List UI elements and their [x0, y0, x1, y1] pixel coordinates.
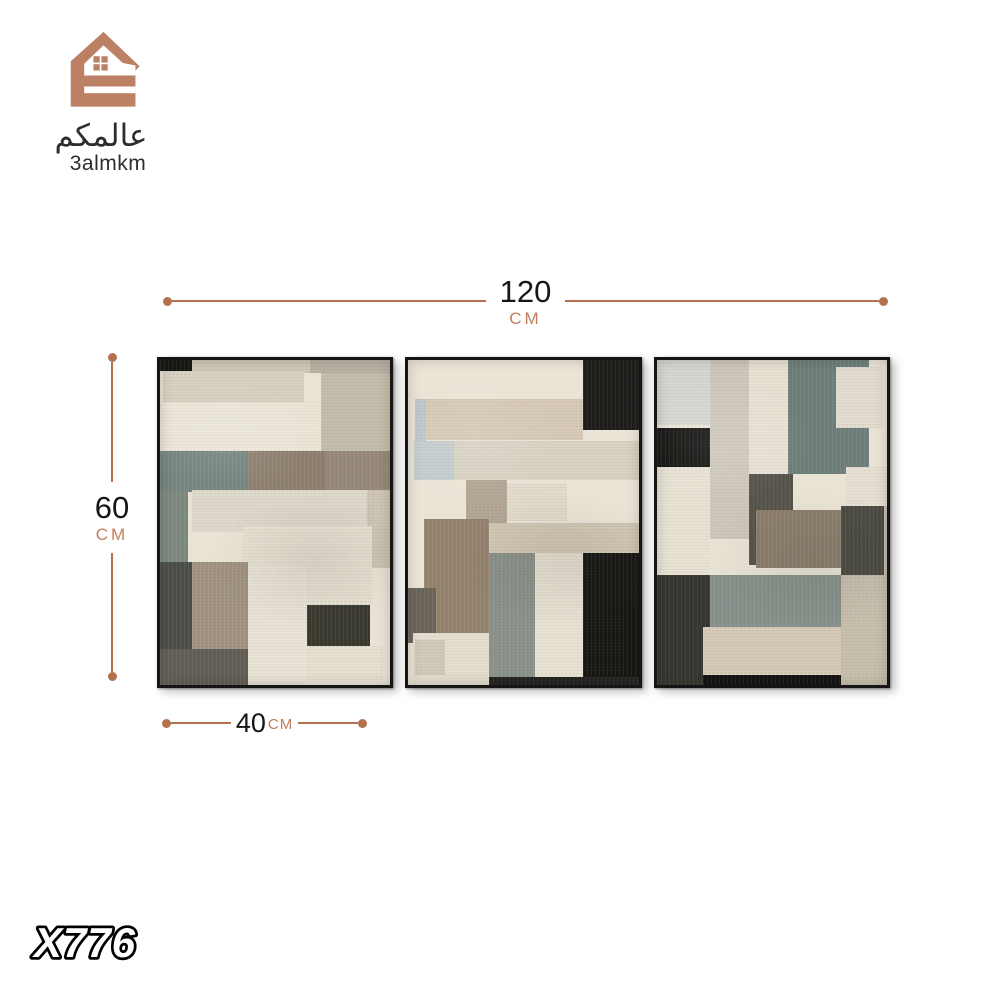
dimension-endpoint-dot — [879, 297, 888, 306]
art-block — [163, 402, 317, 451]
dimension-unit: CM — [96, 526, 128, 543]
art-block — [248, 451, 326, 490]
art-block — [160, 649, 248, 685]
brand-logo: عالمكم 3almkm — [26, 20, 176, 176]
dimension-label: 40 CM — [236, 710, 293, 737]
art-block — [326, 451, 390, 490]
dimension-unit: CM — [268, 717, 293, 732]
dimension-endpoint-dot — [162, 719, 171, 728]
art-block — [657, 575, 710, 686]
art-block — [414, 441, 454, 480]
dimension-value: 120 — [500, 276, 552, 307]
brand-name-latin: 3almkm — [26, 152, 176, 176]
art-block — [489, 553, 535, 685]
art-block — [160, 451, 248, 492]
art-panel-center — [405, 357, 641, 688]
dimension-total-width: 120 CM — [163, 277, 888, 325]
dimension-panel-width: 40 CM — [162, 706, 367, 740]
art-block — [703, 627, 841, 676]
dimension-height: 60 CM — [91, 353, 133, 681]
art-canvas-left — [160, 360, 390, 685]
dimension-endpoint-dot — [108, 672, 117, 681]
art-block — [466, 480, 507, 524]
art-block — [422, 399, 583, 440]
art-panel-right — [654, 357, 890, 688]
art-block — [583, 360, 638, 430]
brand-house-icon — [59, 20, 143, 116]
dimension-value: 60 — [95, 492, 129, 523]
dimension-endpoint-dot — [108, 353, 117, 362]
art-block — [749, 360, 788, 474]
brand-name-arabic: عالمكم — [26, 120, 176, 153]
art-block — [307, 605, 369, 646]
art-block — [657, 467, 710, 574]
art-block — [489, 677, 639, 685]
art-block — [454, 441, 638, 480]
dimension-endpoint-dot — [163, 297, 172, 306]
art-canvas-right — [657, 360, 887, 685]
art-block — [466, 523, 639, 554]
art-block — [248, 565, 308, 685]
triptych — [157, 357, 890, 688]
art-block — [703, 675, 841, 685]
art-block — [307, 646, 383, 680]
dimension-line — [298, 722, 358, 724]
dimension-line — [111, 553, 113, 673]
art-block — [160, 562, 192, 650]
dimension-value: 40 — [236, 710, 266, 737]
art-canvas-center — [408, 360, 638, 685]
art-block — [160, 360, 192, 371]
dimension-label: 120 CM — [500, 276, 552, 327]
art-block — [415, 640, 445, 676]
art-block — [884, 506, 887, 574]
dimension-line — [171, 722, 231, 724]
art-block — [310, 360, 391, 373]
art-block — [583, 553, 638, 685]
art-block — [163, 371, 304, 402]
art-block — [657, 428, 710, 467]
product-code-text: X776 — [32, 919, 136, 966]
product-image: عالمكم 3almkm 120 CM 60 CM — [0, 0, 1000, 1000]
art-block — [710, 360, 749, 539]
dimension-unit: CM — [509, 310, 541, 327]
art-block — [756, 510, 846, 569]
art-block — [710, 575, 841, 630]
art-block — [507, 484, 567, 521]
art-block — [846, 467, 887, 506]
dimension-endpoint-dot — [358, 719, 367, 728]
art-block — [192, 562, 247, 650]
dimension-line — [565, 300, 879, 302]
art-block — [836, 575, 887, 686]
art-block — [657, 360, 710, 425]
product-code: X776 — [24, 910, 204, 976]
art-panel-left — [157, 357, 393, 688]
art-block — [321, 373, 390, 451]
dimension-label: 60 CM — [95, 492, 129, 543]
art-block — [836, 367, 882, 429]
art-block — [160, 490, 188, 562]
dimension-line — [172, 300, 486, 302]
art-block — [841, 506, 884, 574]
art-block — [535, 553, 583, 677]
dimension-line — [111, 362, 113, 482]
